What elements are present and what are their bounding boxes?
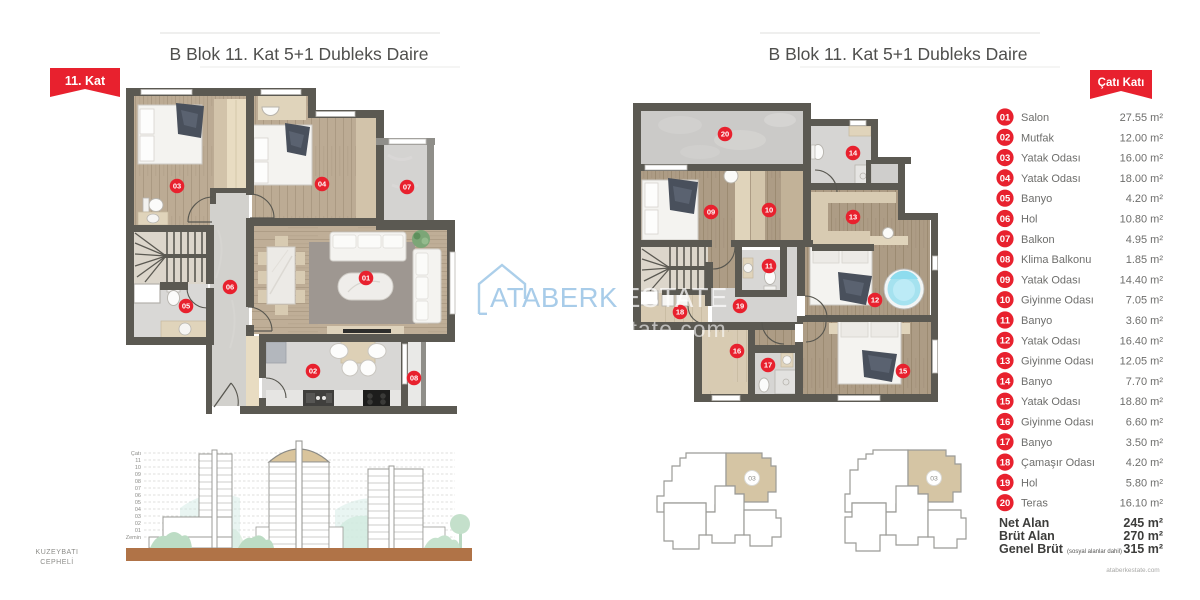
svg-text:10: 10	[765, 206, 773, 215]
svg-text:18.80 m²: 18.80 m²	[1120, 396, 1164, 408]
svg-text:5.80 m²: 5.80 m²	[1126, 477, 1164, 489]
svg-text:7.70 m²: 7.70 m²	[1126, 376, 1164, 388]
svg-text:13: 13	[849, 213, 857, 222]
svg-text:(sosyal alanlar dahil): (sosyal alanlar dahil)	[1067, 549, 1122, 555]
svg-text:Genel Brüt: Genel Brüt	[999, 542, 1064, 556]
svg-text:Banyo: Banyo	[1021, 193, 1052, 205]
svg-text:12.00 m²: 12.00 m²	[1120, 132, 1164, 144]
svg-text:4.95 m²: 4.95 m²	[1126, 234, 1164, 246]
svg-text:Banyo: Banyo	[1021, 376, 1052, 388]
svg-text:KUZEYBATI: KUZEYBATI	[36, 549, 79, 556]
svg-text:06: 06	[226, 283, 234, 292]
svg-text:Yatak Odası: Yatak Odası	[1021, 335, 1081, 347]
svg-text:20: 20	[1000, 498, 1011, 509]
svg-text:10: 10	[1000, 295, 1011, 306]
svg-text:state.com: state.com	[618, 316, 727, 342]
svg-text:06: 06	[1000, 214, 1011, 225]
svg-text:12: 12	[1000, 336, 1011, 347]
svg-text:16: 16	[1000, 417, 1011, 428]
svg-text:Yatak Odası: Yatak Odası	[1021, 153, 1081, 165]
svg-text:07: 07	[1000, 234, 1011, 245]
svg-text:Net Alan: Net Alan	[999, 516, 1049, 530]
svg-text:Banyo: Banyo	[1021, 437, 1052, 449]
svg-text:Çatı: Çatı	[131, 451, 141, 457]
svg-text:18: 18	[1000, 458, 1011, 469]
svg-text:17: 17	[764, 361, 772, 370]
svg-text:Yatak Odası: Yatak Odası	[1021, 173, 1081, 185]
svg-text:05: 05	[182, 302, 190, 311]
svg-text:06: 06	[135, 493, 141, 499]
svg-text:B Blok 11. Kat 5+1 Dubleks Dai: B Blok 11. Kat 5+1 Dubleks Daire	[170, 44, 429, 64]
svg-text:09: 09	[1000, 275, 1011, 286]
svg-text:Giyinme Odası: Giyinme Odası	[1021, 356, 1094, 368]
svg-text:19: 19	[1000, 478, 1011, 489]
svg-text:02: 02	[1000, 133, 1011, 144]
svg-text:3.50 m²: 3.50 m²	[1126, 437, 1164, 449]
svg-text:02: 02	[309, 367, 317, 376]
svg-text:09: 09	[135, 472, 141, 478]
svg-text:13: 13	[1000, 356, 1011, 367]
svg-text:270 m²: 270 m²	[1123, 529, 1163, 543]
svg-text:03: 03	[135, 514, 141, 520]
svg-text:07: 07	[403, 183, 411, 192]
svg-text:02: 02	[135, 521, 141, 527]
svg-text:01: 01	[362, 274, 370, 283]
svg-text:Çatı Katı: Çatı Katı	[1098, 77, 1145, 89]
svg-text:Salon: Salon	[1021, 112, 1049, 124]
svg-text:08: 08	[410, 374, 418, 383]
svg-text:Banyo: Banyo	[1021, 315, 1052, 327]
svg-text:27.55 m²: 27.55 m²	[1120, 112, 1164, 124]
svg-text:05: 05	[1000, 194, 1011, 205]
svg-text:CEPHELİ: CEPHELİ	[40, 557, 73, 566]
svg-text:Balkon: Balkon	[1021, 234, 1055, 246]
svg-text:20: 20	[721, 130, 729, 139]
svg-text:3.60 m²: 3.60 m²	[1126, 315, 1164, 327]
svg-text:315 m²: 315 m²	[1123, 542, 1163, 556]
svg-text:Çamaşır Odası: Çamaşır Odası	[1021, 457, 1095, 469]
svg-text:15: 15	[1000, 397, 1011, 408]
svg-text:Yatak Odası: Yatak Odası	[1021, 274, 1081, 286]
svg-text:05: 05	[135, 500, 141, 506]
svg-text:14.40 m²: 14.40 m²	[1120, 274, 1164, 286]
svg-text:4.20 m²: 4.20 m²	[1126, 457, 1164, 469]
svg-text:16.00 m²: 16.00 m²	[1120, 153, 1164, 165]
svg-text:04: 04	[135, 507, 141, 513]
svg-text:15: 15	[899, 367, 907, 376]
svg-text:18.00 m²: 18.00 m²	[1120, 173, 1164, 185]
svg-text:Giyinme Odası: Giyinme Odası	[1021, 295, 1094, 307]
svg-text:6.60 m²: 6.60 m²	[1126, 417, 1164, 429]
svg-text:01: 01	[135, 528, 141, 534]
svg-text:Yatak Odası: Yatak Odası	[1021, 396, 1081, 408]
svg-text:12.05 m²: 12.05 m²	[1120, 356, 1164, 368]
svg-text:14: 14	[849, 149, 858, 158]
svg-text:Mutfak: Mutfak	[1021, 132, 1055, 144]
svg-text:08: 08	[135, 479, 141, 485]
svg-text:1.85 m²: 1.85 m²	[1126, 254, 1164, 266]
svg-text:03: 03	[930, 476, 938, 483]
svg-text:11. Kat: 11. Kat	[65, 74, 106, 88]
svg-text:11: 11	[1000, 315, 1011, 326]
svg-text:12: 12	[871, 296, 879, 305]
svg-text:Teras: Teras	[1021, 498, 1048, 510]
svg-text:16.10 m²: 16.10 m²	[1120, 498, 1164, 510]
svg-text:16.40 m²: 16.40 m²	[1120, 335, 1164, 347]
svg-text:04: 04	[1000, 173, 1011, 184]
svg-text:07: 07	[135, 486, 141, 492]
svg-text:Giyinme Odası: Giyinme Odası	[1021, 417, 1094, 429]
svg-text:10: 10	[135, 465, 141, 471]
svg-text:04: 04	[318, 180, 327, 189]
svg-text:11: 11	[135, 458, 141, 464]
svg-text:7.05 m²: 7.05 m²	[1126, 295, 1164, 307]
svg-text:03: 03	[173, 182, 181, 191]
svg-text:245 m²: 245 m²	[1123, 516, 1163, 530]
svg-text:ESTATE: ESTATE	[622, 282, 728, 313]
svg-text:10.80 m²: 10.80 m²	[1120, 214, 1164, 226]
svg-text:B Blok 11. Kat 5+1 Dubleks Dai: B Blok 11. Kat 5+1 Dubleks Daire	[769, 44, 1028, 64]
svg-text:Brüt Alan: Brüt Alan	[999, 529, 1055, 543]
svg-text:ATABERK: ATABERK	[490, 282, 618, 313]
svg-text:Zemin: Zemin	[126, 535, 141, 541]
svg-text:03: 03	[748, 476, 756, 483]
svg-text:01: 01	[1000, 112, 1011, 123]
svg-text:16: 16	[733, 347, 741, 356]
svg-text:11: 11	[765, 262, 773, 271]
svg-text:08: 08	[1000, 255, 1011, 266]
svg-text:14: 14	[1000, 376, 1011, 387]
svg-text:17: 17	[1000, 437, 1011, 448]
svg-text:09: 09	[707, 208, 715, 217]
svg-text:19: 19	[736, 302, 744, 311]
svg-text:Hol: Hol	[1021, 214, 1038, 226]
svg-text:ataberkestate.com: ataberkestate.com	[1106, 567, 1159, 574]
svg-text:03: 03	[1000, 153, 1011, 164]
svg-text:Hol: Hol	[1021, 477, 1038, 489]
svg-text:Klima Balkonu: Klima Balkonu	[1021, 254, 1091, 266]
svg-text:4.20 m²: 4.20 m²	[1126, 193, 1164, 205]
